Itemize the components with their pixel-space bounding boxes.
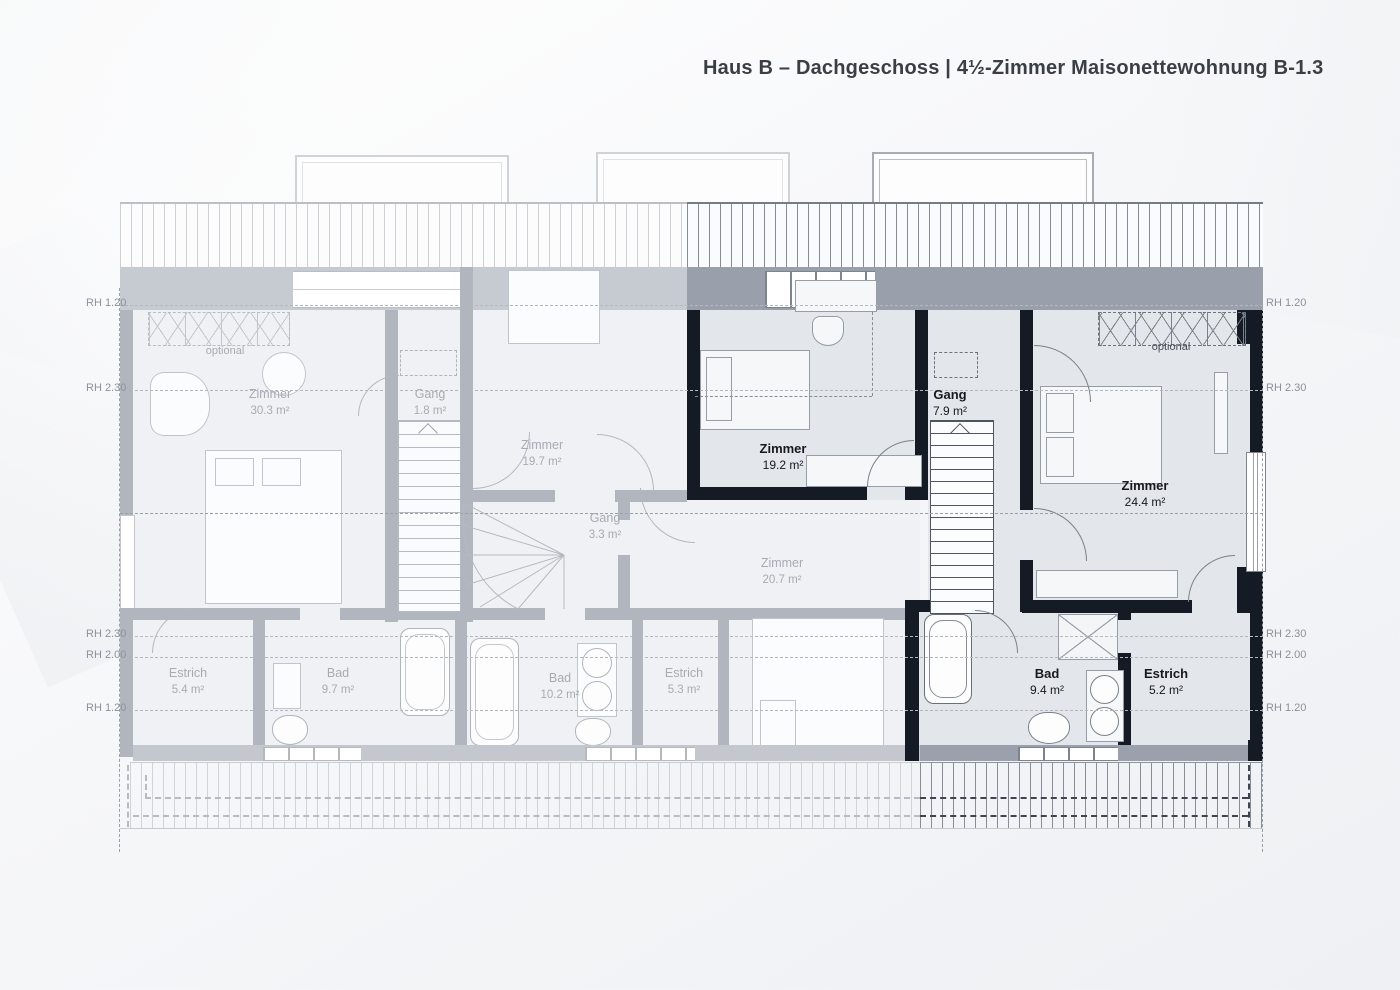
wall-highlight (905, 600, 919, 745)
window-highlight (1246, 452, 1266, 572)
sideboard-icon (1036, 570, 1178, 598)
roof-height-line (120, 710, 1263, 711)
wall-highlight (1022, 600, 1192, 613)
wall-highlight (687, 487, 867, 500)
staircase-faded (398, 420, 461, 612)
bathtub-icon (400, 628, 450, 716)
sink-icon (1090, 675, 1119, 704)
interior-wall-faded (253, 620, 265, 745)
chair-icon (812, 316, 844, 346)
roof-hatch-band-highlight (687, 202, 1263, 268)
pillow-icon (760, 700, 796, 750)
terrace-railing-faded (130, 762, 920, 828)
pillow-icon (1046, 437, 1074, 477)
interior-wall-faded (455, 620, 467, 745)
height-label: RH 2.00 (86, 649, 126, 661)
room-label: Gang3.3 m² (589, 510, 622, 544)
section-line (1262, 288, 1263, 852)
terrace-door-sill (263, 747, 361, 761)
spiral-staircase-faded (462, 497, 568, 611)
bathtub-icon (470, 638, 519, 746)
exterior-wall-faded (120, 310, 133, 515)
terrace-door-sill (1018, 747, 1118, 761)
wall-highlight (1237, 567, 1250, 613)
dormer-outline (872, 152, 1094, 208)
room-label-highlight: Bad9.4 m² (1030, 665, 1064, 699)
interior-wall-faded (120, 608, 300, 620)
room-label: Bad10.2 m² (541, 670, 580, 704)
terrace-railing-highlight (920, 762, 1263, 828)
room-label: Zimmer30.3 m² (249, 386, 291, 420)
terrace-dashed-line-highlight (920, 797, 1248, 799)
height-label: RH 1.20 (1266, 297, 1306, 309)
tv-board-icon (1214, 372, 1228, 454)
height-label: RH 2.30 (86, 628, 126, 640)
window-faded (120, 515, 135, 617)
height-label: RH 2.00 (1266, 649, 1306, 661)
wall-highlight (1118, 612, 1131, 620)
roof-height-line (120, 305, 1263, 306)
bathtub-icon (924, 614, 972, 704)
bed-icon (508, 270, 600, 344)
room-label-highlight: Zimmer19.2 m² (760, 440, 807, 474)
height-label: RH 2.30 (86, 382, 126, 394)
terrace-dashed-line (145, 797, 920, 799)
staircase-highlight (930, 420, 994, 614)
room-label: Estrich5.4 m² (169, 665, 207, 699)
terrace-dashed-line (127, 765, 129, 827)
room-label-highlight: Estrich5.2 m² (1144, 665, 1188, 699)
dormer-outline (596, 152, 790, 208)
terrace-dashed-line (145, 775, 147, 799)
room-label: Bad9.7 m² (322, 665, 355, 699)
washbasin-icon (273, 663, 301, 709)
height-label: RH 1.20 (1266, 702, 1306, 714)
wardrobe-icon (1058, 614, 1118, 660)
interior-wall-faded (632, 612, 643, 757)
room-label-highlight: Zimmer24.4 m² (1122, 477, 1169, 511)
room-label-highlight: Gang7.9 m² (933, 386, 967, 420)
armchair-icon (150, 372, 210, 436)
knee-wall-dashed-line (695, 396, 872, 397)
wall-highlight (687, 310, 700, 500)
pillow-icon (706, 357, 732, 421)
section-line (119, 288, 120, 852)
stair-opening-dashed (400, 350, 457, 376)
wall-highlight (1020, 310, 1033, 510)
ridge-line (120, 513, 1263, 514)
sink-icon (582, 648, 612, 678)
room-label: Zimmer20.7 m² (761, 555, 803, 589)
terrace-door-sill (585, 747, 695, 761)
sink-icon (582, 681, 612, 711)
room-label: Zimmer19.7 m² (521, 437, 563, 471)
optional-area-hatch (148, 312, 290, 346)
window-faded (293, 271, 460, 308)
height-label: RH 1.20 (86, 297, 126, 309)
room-label: Estrich5.3 m² (665, 665, 703, 699)
height-label: RH 2.30 (1266, 382, 1306, 394)
terrace-dashed-line-highlight (920, 815, 1248, 817)
terrace-dashed-line-highlight (1248, 765, 1250, 827)
sink-icon (1090, 707, 1119, 736)
stair-opening-dashed (934, 352, 978, 378)
roof-height-line (120, 390, 1263, 391)
pillow-icon (262, 458, 301, 486)
wall-highlight (1248, 740, 1263, 761)
terrace-dashed-line (133, 815, 920, 817)
roof-hatch-band-faded (120, 202, 687, 268)
height-label: RH 2.30 (1266, 628, 1306, 640)
dormer-outline (295, 155, 509, 208)
room-label: Gang1.8 m² (414, 386, 447, 420)
toilet-icon (272, 715, 308, 745)
toilet-icon (1028, 712, 1070, 744)
roof-height-line (120, 657, 1263, 658)
roof-height-line (120, 636, 1263, 637)
interior-wall-faded (618, 555, 630, 612)
terrace-edge-line (120, 828, 1263, 829)
interior-wall-faded (718, 612, 729, 757)
terrace-wall-faded (133, 745, 920, 761)
floorplan-page: { "title": "Haus B – Dachgeschoss | 4½-Z… (0, 0, 1400, 990)
interior-wall-faded (385, 310, 398, 622)
page-title: Haus B – Dachgeschoss | 4½-Zimmer Maison… (703, 57, 1323, 80)
toilet-icon (575, 718, 611, 746)
optional-label: optional (206, 343, 245, 360)
wall-highlight (905, 740, 919, 761)
pillow-icon (215, 458, 254, 486)
height-label: RH 1.20 (86, 702, 126, 714)
optional-label: optional (1152, 341, 1191, 353)
knee-wall-dashed-line (872, 312, 873, 396)
desk-icon (795, 280, 877, 312)
